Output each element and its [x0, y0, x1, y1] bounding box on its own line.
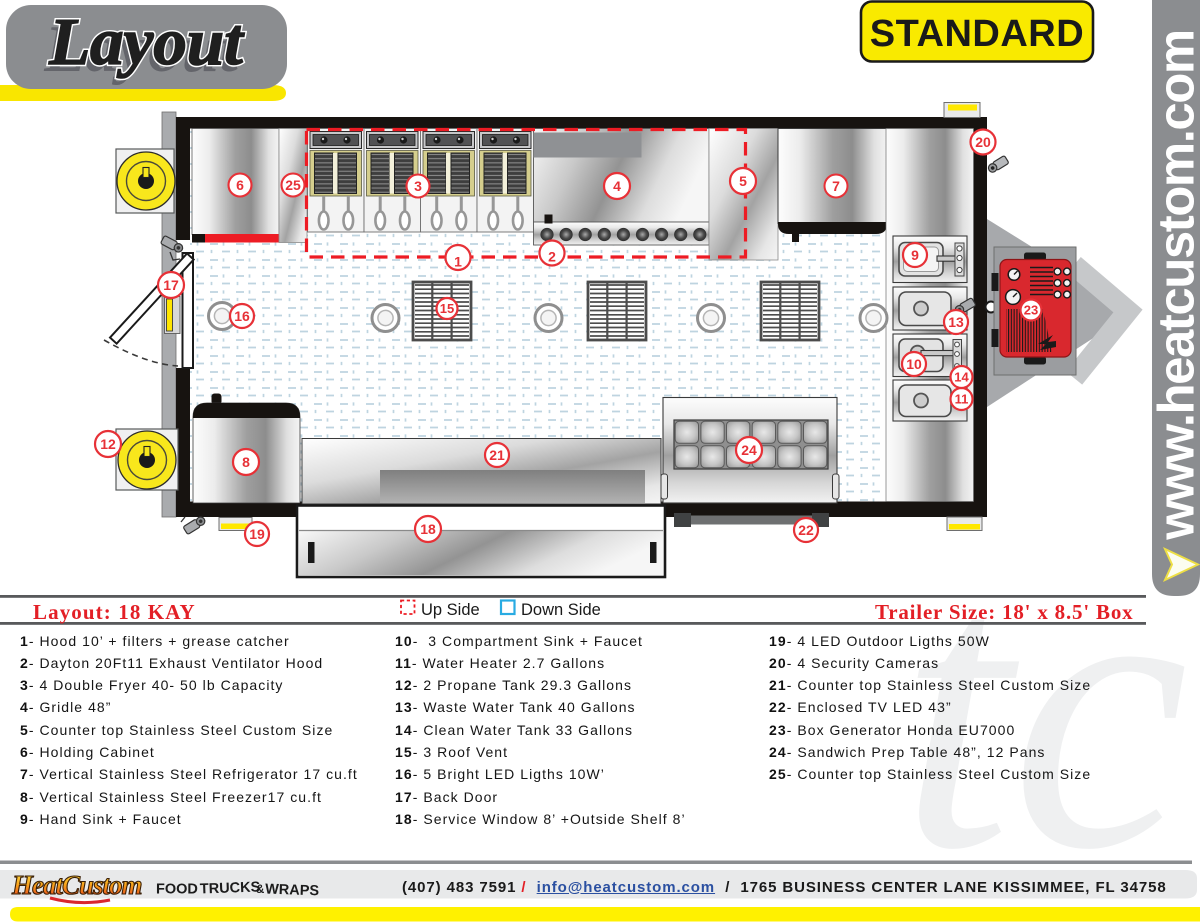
svg-text:18: 18: [420, 521, 436, 537]
svg-text:TRUCKS: TRUCKS: [200, 879, 261, 897]
svg-text:14: 14: [954, 370, 969, 385]
svg-text:2: 2: [548, 249, 556, 265]
svg-text:STANDARD: STANDARD: [870, 13, 1084, 55]
svg-text:17: 17: [163, 277, 179, 293]
svg-text:20: 20: [975, 134, 991, 150]
svg-text:HeatCustom: HeatCustom: [11, 870, 142, 900]
svg-text:21: 21: [489, 447, 505, 463]
svg-text:11: 11: [955, 392, 969, 407]
svg-text:Layout: Layout: [48, 5, 245, 79]
svg-text:19: 19: [249, 526, 265, 542]
svg-text:&: &: [256, 884, 264, 896]
svg-text:3: 3: [414, 178, 422, 194]
svg-text:WRAPS: WRAPS: [265, 882, 320, 900]
svg-text:24: 24: [741, 442, 757, 458]
svg-text:5: 5: [739, 173, 747, 189]
svg-text:16: 16: [234, 308, 250, 324]
svg-text:23: 23: [1024, 303, 1038, 318]
svg-text:1: 1: [454, 254, 462, 270]
svg-text:7: 7: [832, 178, 840, 194]
svg-text:9: 9: [911, 247, 919, 263]
svg-text:12: 12: [100, 436, 116, 452]
svg-text:25: 25: [285, 177, 301, 193]
svg-text:13: 13: [948, 314, 964, 330]
svg-text:4: 4: [613, 178, 621, 194]
svg-text:10: 10: [906, 356, 922, 372]
svg-text:FOOD: FOOD: [156, 882, 198, 898]
svg-text:15: 15: [440, 301, 454, 316]
svg-text:8: 8: [242, 454, 250, 470]
svg-text:22: 22: [798, 522, 814, 538]
svg-text:6: 6: [236, 177, 244, 193]
